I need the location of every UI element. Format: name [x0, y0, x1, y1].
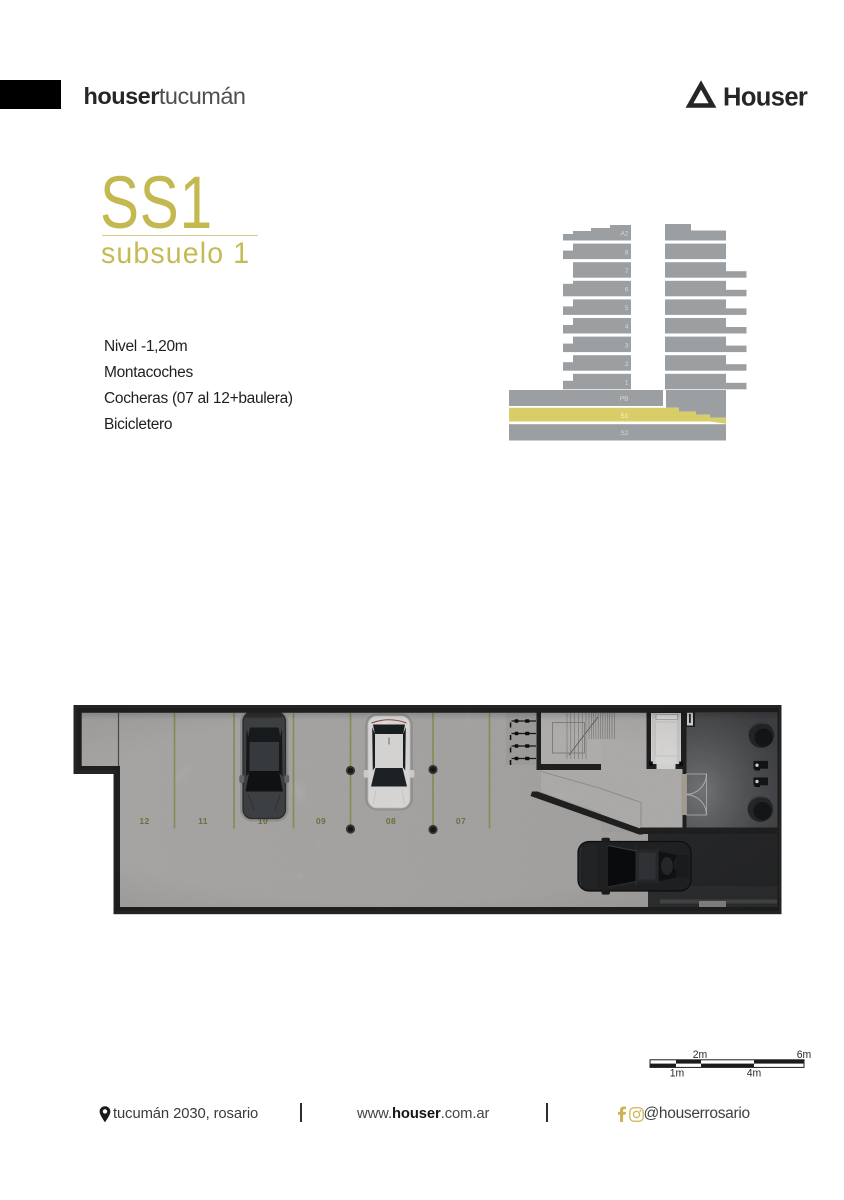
- svg-text:PB: PB: [620, 396, 629, 403]
- svg-text:2: 2: [625, 361, 629, 368]
- svg-text:4m: 4m: [747, 1067, 762, 1079]
- svg-text:3: 3: [625, 342, 629, 349]
- svg-text:5: 5: [625, 305, 629, 312]
- svg-text:6: 6: [625, 287, 629, 294]
- svg-text:6m: 6m: [797, 1049, 812, 1061]
- svg-text:1: 1: [625, 380, 629, 387]
- svg-text:2m: 2m: [693, 1049, 708, 1061]
- svg-text:8: 8: [625, 249, 629, 256]
- svg-text:1m: 1m: [670, 1067, 685, 1079]
- svg-text:4: 4: [625, 324, 629, 331]
- svg-text:S2: S2: [621, 430, 629, 437]
- svg-text:7: 7: [625, 268, 629, 275]
- svg-text:S1: S1: [621, 413, 629, 420]
- svg-text:A2: A2: [621, 231, 629, 238]
